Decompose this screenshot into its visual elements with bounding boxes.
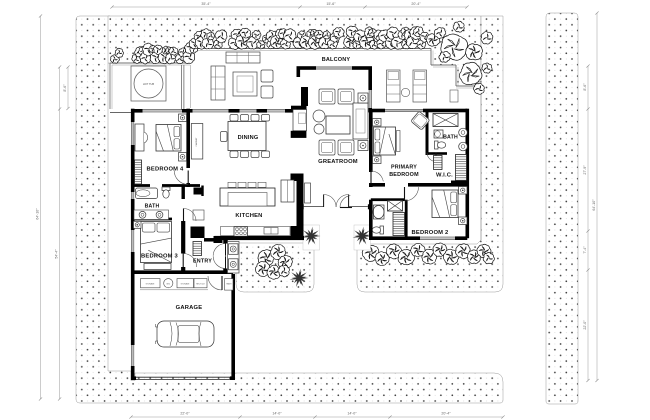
svg-text:BEDROOM 2: BEDROOM 2 [412,230,449,236]
svg-text:64'-10": 64'-10" [36,208,40,220]
svg-text:RECYCLE: RECYCLE [196,284,205,286]
svg-text:STORAGE: STORAGE [146,283,156,286]
svg-text:27'-9": 27'-9" [583,165,587,175]
svg-text:STORAGE: STORAGE [181,283,191,286]
svg-text:BATH: BATH [145,203,160,209]
svg-text:14'-0": 14'-0" [347,412,357,416]
svg-text:PRIMARY: PRIMARY [391,164,417,170]
svg-text:20'-4": 20'-4" [411,2,421,6]
svg-text:BEDROOM: BEDROOM [389,172,419,178]
svg-text:54'-4": 54'-4" [55,249,59,259]
svg-text:HOT TUB: HOT TUB [143,82,155,86]
svg-text:BEDROOM 4: BEDROOM 4 [147,166,184,172]
svg-text:GREATROOM: GREATROOM [318,159,358,165]
svg-text:DINING: DINING [238,135,259,141]
svg-text:20'-4": 20'-4" [441,412,451,416]
svg-text:14'-0": 14'-0" [272,412,282,416]
svg-text:22'-0": 22'-0" [583,320,587,330]
svg-text:BALCONY: BALCONY [322,57,351,63]
svg-text:BEDROOM 3: BEDROOM 3 [141,253,178,259]
svg-text:8'-6": 8'-6" [583,83,587,91]
svg-text:W.I.C.: W.I.C. [436,172,453,178]
svg-text:BATH: BATH [443,135,458,141]
svg-text:64'-10": 64'-10" [592,199,596,211]
svg-text:8'-6": 8'-6" [63,84,67,92]
svg-text:22'-0": 22'-0" [180,412,190,416]
svg-text:15'-6": 15'-6" [326,2,336,6]
svg-text:KITCHEN: KITCHEN [235,213,262,219]
svg-text:35'-4": 35'-4" [201,2,211,6]
svg-text:7'-4": 7'-4" [583,246,587,254]
svg-text:GARAGE: GARAGE [176,305,203,311]
svg-text:ENTRY: ENTRY [193,259,212,265]
svg-text:CABINET: CABINET [195,137,198,147]
